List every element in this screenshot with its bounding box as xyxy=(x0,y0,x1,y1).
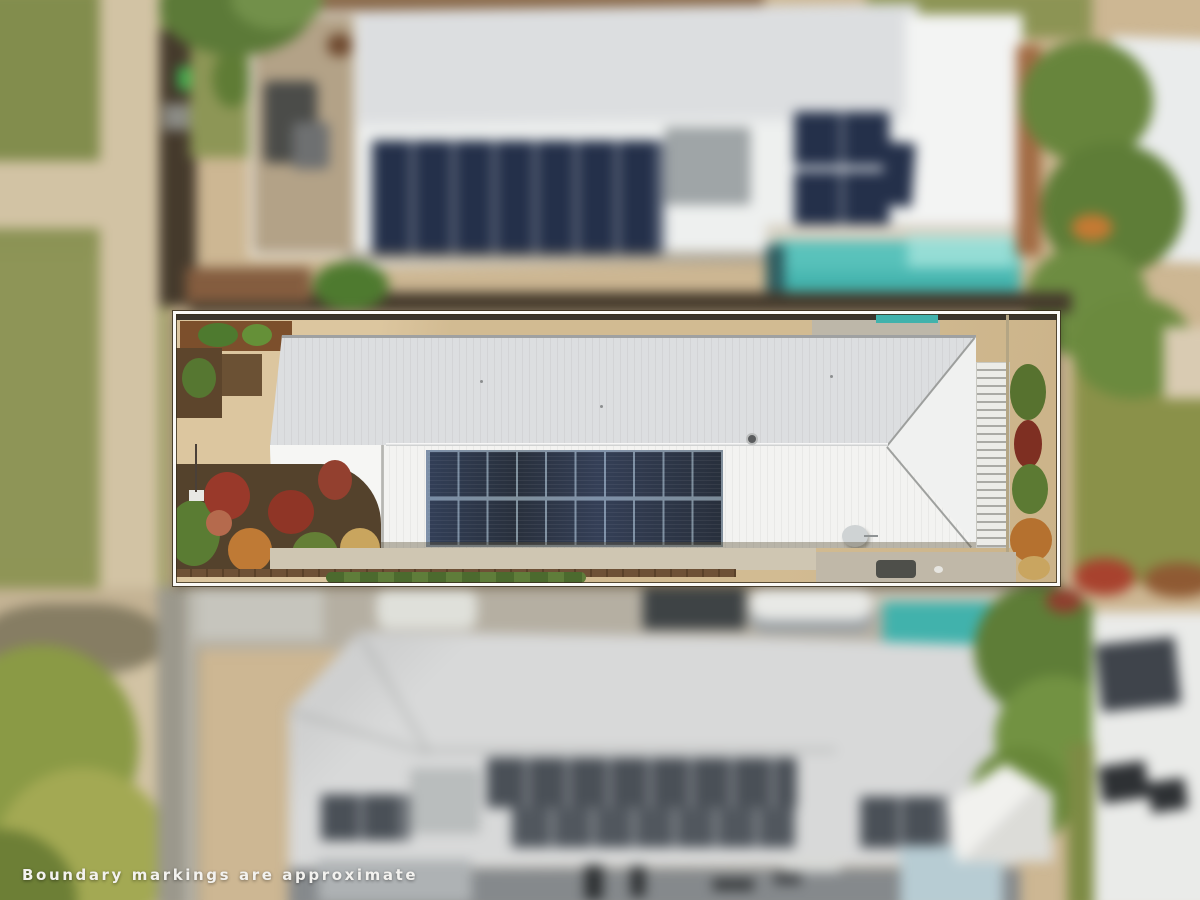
dark-item-bottom-right xyxy=(876,560,916,578)
pool-glass-fence xyxy=(908,235,1015,268)
garden-red-right-1 xyxy=(1074,559,1136,596)
garden-right-straw-tuft xyxy=(1018,556,1050,580)
roof-speck-1 xyxy=(480,380,483,383)
garden-red-cluster-3 xyxy=(318,460,352,500)
bottom-roof-ridge xyxy=(426,749,836,751)
planter-greens-2 xyxy=(242,324,272,346)
garden-shed-roof xyxy=(195,586,323,639)
garden-right-maroon xyxy=(1014,420,1042,468)
terrace-furniture-2 xyxy=(293,122,330,169)
top-house-roof-hatch xyxy=(666,128,750,204)
hedge-row xyxy=(326,572,586,583)
roof-speck-3 xyxy=(830,375,833,378)
boat xyxy=(750,587,873,632)
bottom-solar-array-left xyxy=(319,794,409,840)
concrete-apron xyxy=(270,548,816,570)
palm-by-pergola xyxy=(313,261,389,310)
roof-upper-slope xyxy=(270,335,976,445)
subject-property xyxy=(176,314,1057,583)
top-house-solar-extra-panel xyxy=(881,142,916,208)
brown-pergola xyxy=(186,268,311,303)
roof-speck-2 xyxy=(600,405,603,408)
roof-ridge-line xyxy=(386,443,888,446)
caption-text: Boundary markings are approximate xyxy=(22,866,418,884)
aerial-photo: Boundary markings are approximate xyxy=(0,0,1200,900)
neighbor-solar-bottom-right xyxy=(1095,637,1182,713)
roof-top-eave-line xyxy=(270,335,976,338)
patio-item-2 xyxy=(774,872,801,884)
white-louvre-pergola xyxy=(976,362,1010,548)
garden-right-green-2 xyxy=(1012,464,1048,514)
neighbor-window-2 xyxy=(1147,778,1188,814)
bottom-solar-array-main-row1 xyxy=(485,758,797,808)
bottom-solar-array-right xyxy=(858,796,948,847)
patio-white-table xyxy=(782,856,841,872)
neighbor-wall-right xyxy=(1164,327,1200,399)
patio-door-1 xyxy=(585,865,603,900)
pavement-bottom-right xyxy=(816,552,1016,583)
planter-greens-1 xyxy=(198,323,238,347)
top-house-solar-array-right xyxy=(793,112,891,227)
bottom-solar-array-main-row2 xyxy=(510,808,795,848)
subject-solar-array xyxy=(426,450,723,547)
footpath-horizontal-upper xyxy=(0,161,167,229)
palm-orange-frond xyxy=(1072,214,1113,241)
garden-orange-grass xyxy=(228,528,272,572)
patio-door-2 xyxy=(631,866,645,897)
grass-strip-bottom-right xyxy=(1067,743,1094,900)
planter-greens-3 xyxy=(182,358,216,398)
white-dot-item xyxy=(934,566,943,573)
garden-pink-cluster xyxy=(206,510,232,536)
roof-vent xyxy=(746,433,758,445)
kerb-line xyxy=(188,586,192,900)
garden-right-green-1 xyxy=(1010,364,1046,420)
garden-red-cluster-2 xyxy=(268,490,314,534)
satellite-dish-arm xyxy=(864,535,878,537)
garden-right-wall xyxy=(1006,314,1009,583)
dark-equipment xyxy=(643,586,746,629)
water-tank xyxy=(377,588,477,629)
solar-hot-water-panel xyxy=(411,770,479,833)
bush-top xyxy=(213,50,252,107)
top-house-solar-array-left xyxy=(370,140,663,257)
garden-red-right-2 xyxy=(1143,563,1200,598)
planter-soil xyxy=(222,354,262,396)
neighbor-window-1 xyxy=(1098,761,1150,804)
garage-roof-step-shadow xyxy=(381,445,384,548)
pool-sliver xyxy=(876,314,938,323)
terrace-brown-spot xyxy=(327,34,352,57)
tree-red-accent xyxy=(1046,588,1083,613)
patio-item-1 xyxy=(713,878,754,890)
garden-sign-post xyxy=(195,444,197,492)
